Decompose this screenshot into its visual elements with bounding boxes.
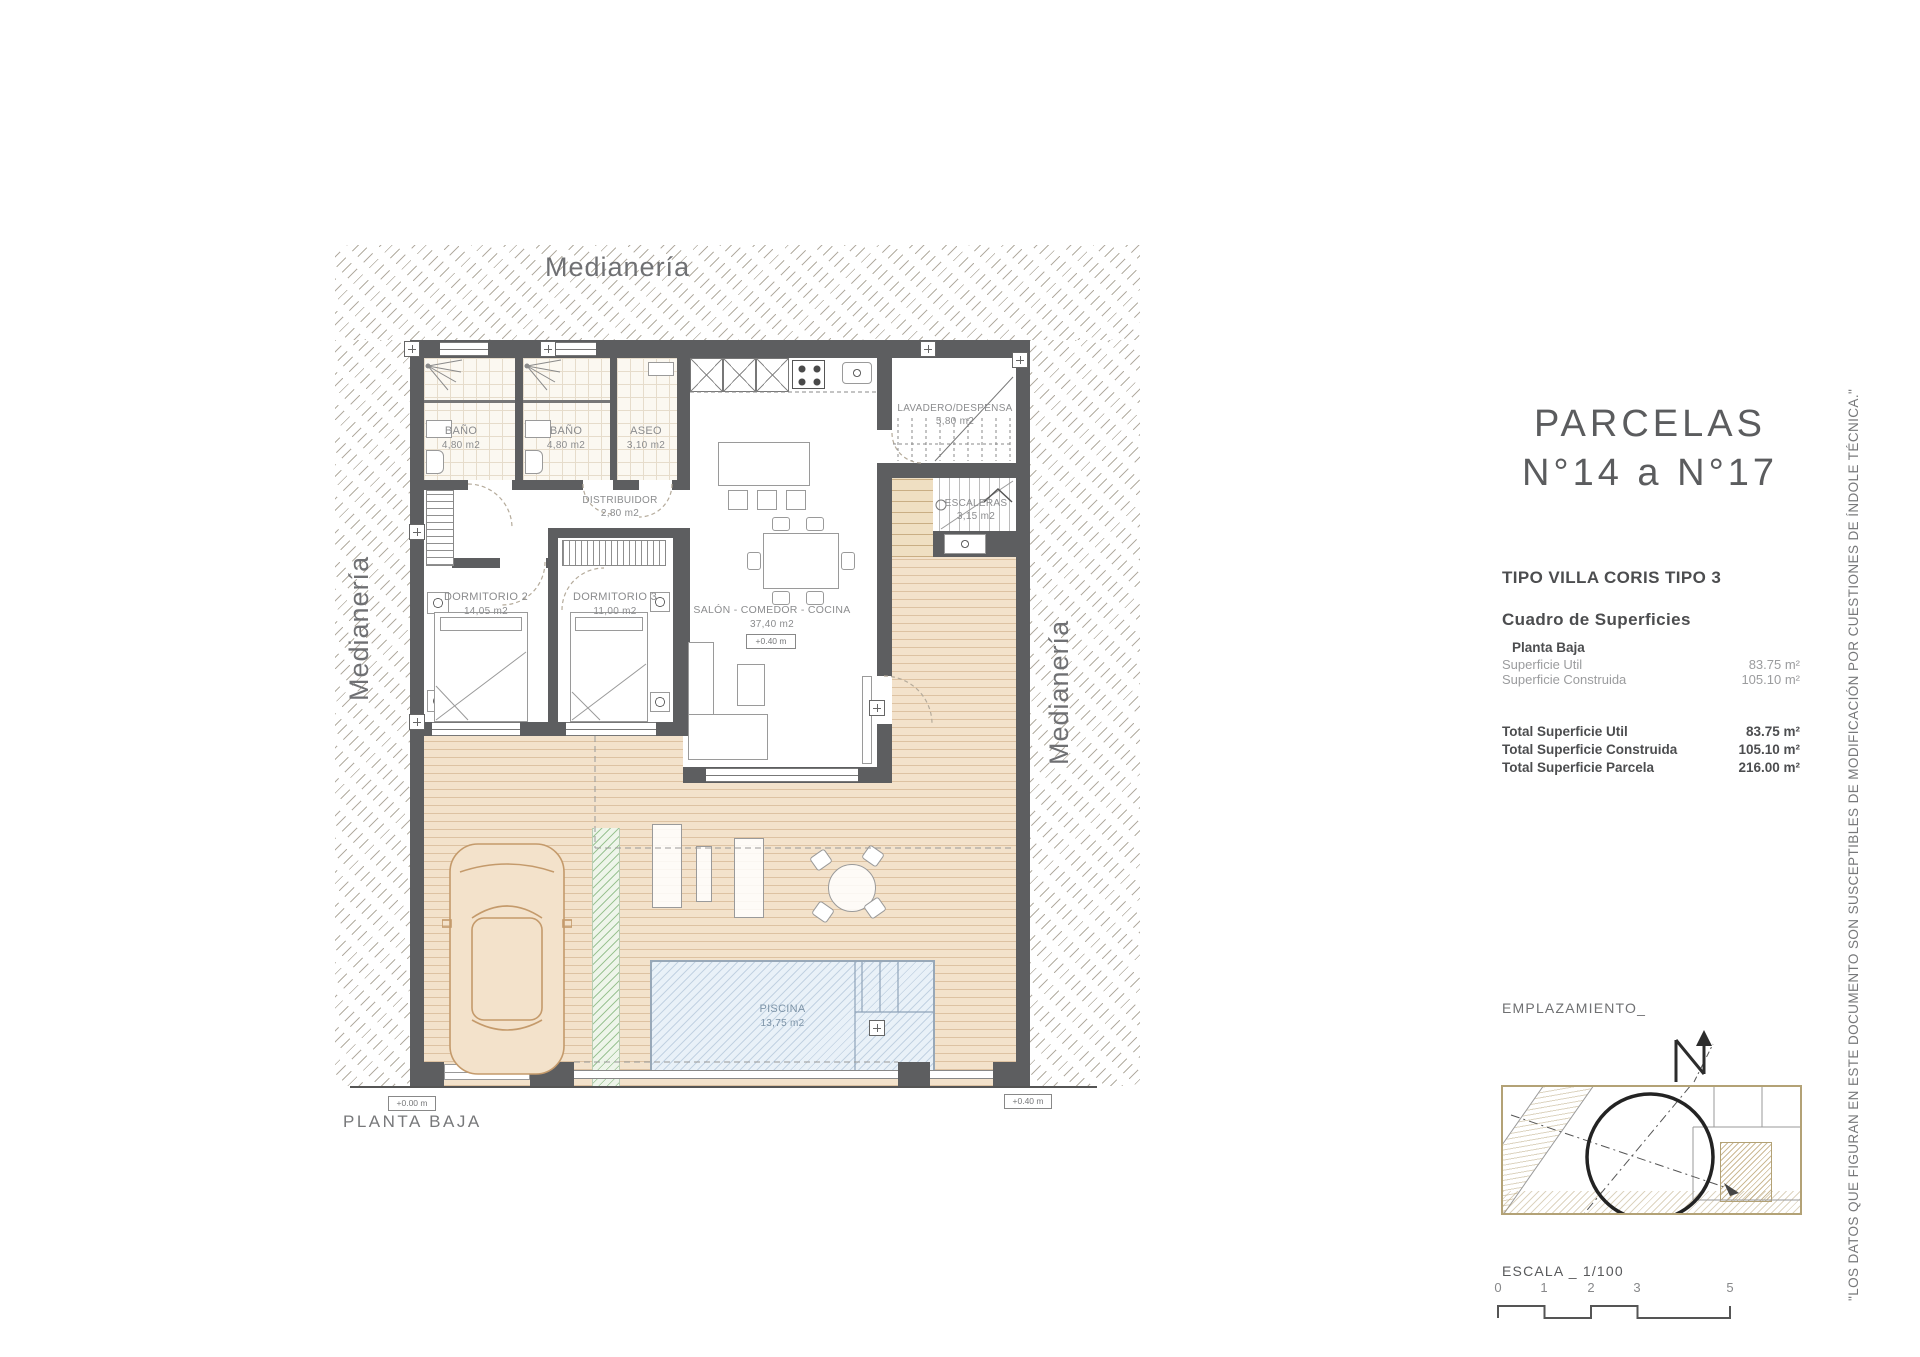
hatch-top <box>335 245 1140 340</box>
dining-chair <box>806 517 824 531</box>
surface-row: Superficie Construida 105.10 m² <box>1502 672 1800 687</box>
wall-left <box>410 340 424 1086</box>
floor-name: PLANTA BAJA <box>343 1112 482 1132</box>
wardrobe-icon <box>690 358 723 392</box>
total-row-value: 105.10 m² <box>1738 742 1800 757</box>
scale-tick: 2 <box>1580 1280 1602 1295</box>
medianeria-right-label: Medianería <box>1044 592 1075 792</box>
scale-tick: 1 <box>1533 1280 1555 1295</box>
window-bath2-top <box>552 342 596 356</box>
sun-lounger <box>734 838 764 918</box>
total-row-label: Total Superficie Util <box>1502 724 1628 739</box>
total-row: Total Superficie Construida 105.10 m² <box>1502 742 1800 757</box>
pier-4 <box>993 1062 1030 1086</box>
surface-table-title: Cuadro de Superficies <box>1502 610 1691 630</box>
sofa-chaise <box>688 714 768 760</box>
aseo-sink <box>648 362 674 376</box>
ground-line <box>350 1086 1097 1088</box>
pier-2 <box>530 1062 574 1086</box>
stool <box>728 490 748 510</box>
sheet-title-line1: PARCELAS <box>1534 403 1766 445</box>
room-label-lavadero: LAVADERO/DESPENSA 5,80 m2 <box>880 402 1030 428</box>
window-dorm3 <box>566 722 656 736</box>
map-highlight-parcel <box>1720 1142 1772 1202</box>
dimension-marker <box>404 341 420 357</box>
dining-chair <box>841 552 855 570</box>
door-gap-aseo <box>639 480 672 490</box>
room-label-distribuidor: DISTRIBUIDOR 2,80 m2 <box>550 494 690 520</box>
level-badge-terrace: +0.40 m <box>1004 1094 1052 1109</box>
bed-pillow <box>575 617 643 631</box>
wall-lavadero-bottom <box>892 463 1016 478</box>
room-label-bano1: BAÑO 4,80 m2 <box>405 424 517 452</box>
drawing-sheet: Medianería Medianería Medianería <box>0 0 1920 1357</box>
wall-salon-right-b <box>877 463 892 676</box>
planting-strip <box>592 828 620 1086</box>
north-arrow-icon <box>1664 1024 1720 1086</box>
window-dorm2 <box>432 722 520 736</box>
wall-top <box>410 340 1030 358</box>
scale-tick: 0 <box>1487 1280 1509 1295</box>
window-salon <box>706 768 858 782</box>
pier-1 <box>410 1062 444 1086</box>
escala-heading: ESCALA _ 1/100 <box>1502 1263 1624 1279</box>
dimension-marker <box>1012 352 1028 368</box>
wall-dorm2-dorm3 <box>548 528 558 736</box>
room-label-escaleras: ESCALERAS 3,15 m2 <box>916 497 1036 523</box>
dimension-marker <box>540 341 556 357</box>
surface-row-value: 105.10 m² <box>1741 672 1800 687</box>
shower-screen-bath2 <box>523 400 610 403</box>
sink-basin-icon <box>843 363 871 383</box>
stool <box>757 490 777 510</box>
total-row: Total Superficie Util 83.75 m² <box>1502 724 1800 739</box>
dimension-marker <box>409 714 425 730</box>
boiler <box>944 534 986 554</box>
emplazamiento-heading: EMPLAZAMIENTO_ <box>1502 1000 1646 1016</box>
stool <box>786 490 806 510</box>
room-label-dorm2: DORMITORIO 2 14,05 m2 <box>411 590 561 618</box>
dining-chair <box>772 591 790 605</box>
surface-row-label: Superficie Construida <box>1502 672 1626 687</box>
medianeria-left-label: Medianería <box>344 528 375 728</box>
level-badge-entrance: +0.00 m <box>388 1096 436 1111</box>
sheet-title-line2: N°14 a N°17 <box>1522 452 1778 494</box>
bed-pillow <box>440 617 522 631</box>
scale-tick: 3 <box>1626 1280 1648 1295</box>
type-title: TIPO VILLA CORIS TIPO 3 <box>1502 568 1721 588</box>
dining-chair <box>806 591 824 605</box>
surface-row-label: Superficie Util <box>1502 657 1582 672</box>
dimension-marker <box>409 524 425 540</box>
stove-icon <box>792 360 825 389</box>
toilet <box>525 450 543 474</box>
legal-disclaimer: "LOS DATOS QUE FIGURAN EN ESTE DOCUMENTO… <box>1846 378 1861 1312</box>
location-map <box>1501 1085 1802 1215</box>
nightstand <box>650 692 670 712</box>
entrance-gate <box>444 1064 530 1080</box>
room-label-dorm3: DORMITORIO 3 11,00 m2 <box>540 590 690 618</box>
dining-chair <box>772 517 790 531</box>
closet-dorm2 <box>426 490 454 566</box>
wall-bath2-aseo <box>610 358 617 480</box>
room-label-aseo: ASEO 3,10 m2 <box>590 424 702 452</box>
dimension-marker <box>920 341 936 357</box>
floor-subheading: Planta Baja <box>1512 640 1585 655</box>
closet-dorm3 <box>562 540 666 566</box>
wardrobe-icon <box>723 358 756 392</box>
dining-table <box>763 533 839 589</box>
sliding-gate <box>574 1070 898 1079</box>
total-row: Total Superficie Parcela 216.00 m² <box>1502 760 1800 775</box>
medianeria-top-label: Medianería <box>545 252 690 283</box>
surface-row-value: 83.75 m² <box>1749 657 1800 672</box>
boiler-burner-icon <box>945 535 985 553</box>
wall-closet-dorm3-top <box>558 528 690 538</box>
terrace-side-strip <box>892 557 1016 736</box>
sun-lounger <box>652 824 682 908</box>
dimension-marker <box>869 1020 885 1036</box>
wall-bath1-bath2 <box>515 358 523 480</box>
dimension-marker <box>869 700 885 716</box>
aseo-floor <box>617 358 677 480</box>
lounger-side-table <box>696 846 712 902</box>
total-row-label: Total Superficie Construida <box>1502 742 1677 757</box>
pier-3 <box>898 1062 930 1086</box>
kitchen-island <box>718 442 810 486</box>
room-label-piscina: PISCINA 13,75 m2 <box>700 1002 865 1030</box>
surface-row: Superficie Util 83.75 m² <box>1502 657 1800 672</box>
door-gap-dorm2 <box>500 558 546 568</box>
wall-aseo-salon <box>677 358 690 480</box>
kitchen-sink <box>842 362 872 384</box>
sheet-title: PARCELAS N°14 a N°17 <box>1460 400 1840 497</box>
total-row-value: 216.00 m² <box>1738 760 1800 775</box>
scale-bar <box>1488 1298 1748 1324</box>
fence-right <box>930 1070 993 1079</box>
door-gap-bath1 <box>468 480 512 490</box>
dining-chair <box>747 552 761 570</box>
window-bath1-top <box>440 342 488 356</box>
wardrobe-icon <box>756 358 789 392</box>
coffee-table <box>737 664 765 706</box>
total-row-label: Total Superficie Parcela <box>1502 760 1654 775</box>
room-label-salon: SALÓN - COMEDOR - COCINA 37,40 m2 <box>678 604 866 631</box>
wall-salon-right-c <box>877 724 892 770</box>
shower-screen-bath1 <box>424 400 515 403</box>
scale-tick: 5 <box>1719 1280 1741 1295</box>
door-gap-bath2 <box>583 480 613 490</box>
tv-unit <box>862 676 872 764</box>
level-badge-salon: +0.40 m <box>746 634 796 649</box>
total-row-value: 83.75 m² <box>1746 724 1800 739</box>
toilet <box>426 450 444 474</box>
wall-right <box>1016 340 1030 1086</box>
